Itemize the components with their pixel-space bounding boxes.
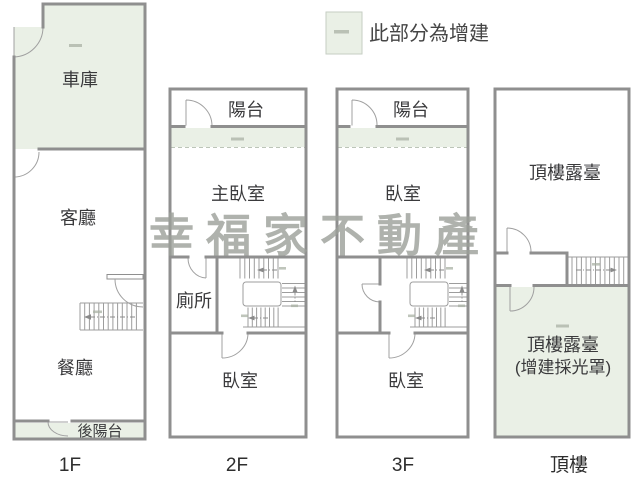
living-room-label: 客廳 (60, 208, 96, 228)
stair-stub-wall (107, 275, 143, 280)
stairs-roof (567, 257, 629, 284)
floor-label-1f: 1F (59, 455, 81, 476)
stairs-landing (410, 282, 448, 306)
floor-label-3f: 3F (392, 455, 414, 476)
stairs-stamp (291, 305, 298, 308)
stairs-upper-flight (240, 259, 278, 279)
floorplan-canvas: 此部分為增建 車庫 客廳 餐廳 後陽台 1F (0, 0, 640, 480)
terrace-door-arc (507, 228, 531, 253)
stairs-stamp (446, 267, 453, 270)
stairs-3f (407, 259, 467, 328)
agency-watermark: 幸福家不動產 (149, 210, 491, 261)
balcony-door-arc-2f (186, 100, 212, 126)
floorplan-2f: 陽台 主臥室 廁所 臥室 2F (170, 89, 306, 476)
arrowhead-icon (415, 316, 422, 321)
small-room-door-arc (362, 284, 380, 302)
balcony-label-2f: 陽台 (228, 100, 264, 120)
bedroom-front-label-3f: 臥室 (385, 184, 421, 204)
stairs-stamp (241, 315, 248, 318)
stairs-upper-flight (407, 259, 445, 279)
roof-terrace-label: 頂樓露臺 (529, 163, 601, 183)
bedroom-back-label-3f: 臥室 (388, 371, 424, 391)
stairs-stamp (458, 305, 465, 308)
strip-stamp-2f (231, 138, 244, 141)
stairs-2f (240, 259, 305, 328)
roof-addition-label-line1: 頂樓露臺 (527, 335, 599, 355)
legend-label: 此部分為增建 (369, 22, 489, 45)
arrowhead-icon (293, 286, 298, 293)
stairs-stamp (592, 263, 600, 266)
bedroom-label-2f: 臥室 (222, 371, 258, 391)
arrowhead-icon (257, 268, 264, 273)
master-bedroom-label: 主臥室 (211, 184, 265, 204)
rear-balcony-label: 後陽台 (77, 423, 122, 440)
arrowhead-icon (460, 286, 465, 293)
floor-label-roof: 頂樓 (550, 454, 588, 476)
stairs-stamp (408, 315, 415, 318)
floorplan-3f: 陽台 臥室 臥室 3F (337, 89, 468, 476)
roof-addition-label-line2: (增建採光罩) (515, 358, 611, 377)
bedroom-door-arc-2f (222, 333, 248, 358)
arrowhead-icon (611, 268, 618, 273)
arrowhead-icon (424, 268, 431, 273)
stairs-stamp (279, 267, 286, 270)
strip-stamp-3f (396, 138, 409, 141)
balcony-door-arc-3f (352, 100, 377, 126)
balcony-label-3f: 陽台 (393, 100, 429, 120)
stairs-treads (567, 257, 629, 284)
toilet-label: 廁所 (176, 290, 212, 311)
bedroom-door-arc-3f (389, 333, 415, 358)
floor-label-2f: 2F (226, 455, 248, 476)
stairs-stamp (93, 311, 102, 314)
stairs-1f (80, 303, 143, 330)
garage-label: 車庫 (62, 70, 98, 90)
floorplan-roof: 頂樓露臺 頂樓露臺 (增建採光罩) 頂樓 (495, 89, 629, 476)
dining-room-label: 餐廳 (57, 358, 93, 378)
roof-stamp (556, 325, 569, 328)
stairs-right-flight (282, 284, 305, 307)
stairs-landing (243, 282, 281, 306)
legend-swatch-stamp (334, 30, 349, 34)
floorplan-1f: 車庫 客廳 餐廳 後陽台 1F (14, 4, 145, 476)
stairs-right-flight (449, 284, 467, 307)
floorplan-page: 此部分為增建 車庫 客廳 餐廳 後陽台 1F (0, 0, 640, 480)
arrowhead-icon (248, 316, 255, 321)
living-door-arc (14, 152, 39, 177)
legend: 此部分為增建 (326, 12, 489, 54)
toilet-door-arc (188, 258, 206, 278)
garage-stamp (69, 44, 82, 47)
